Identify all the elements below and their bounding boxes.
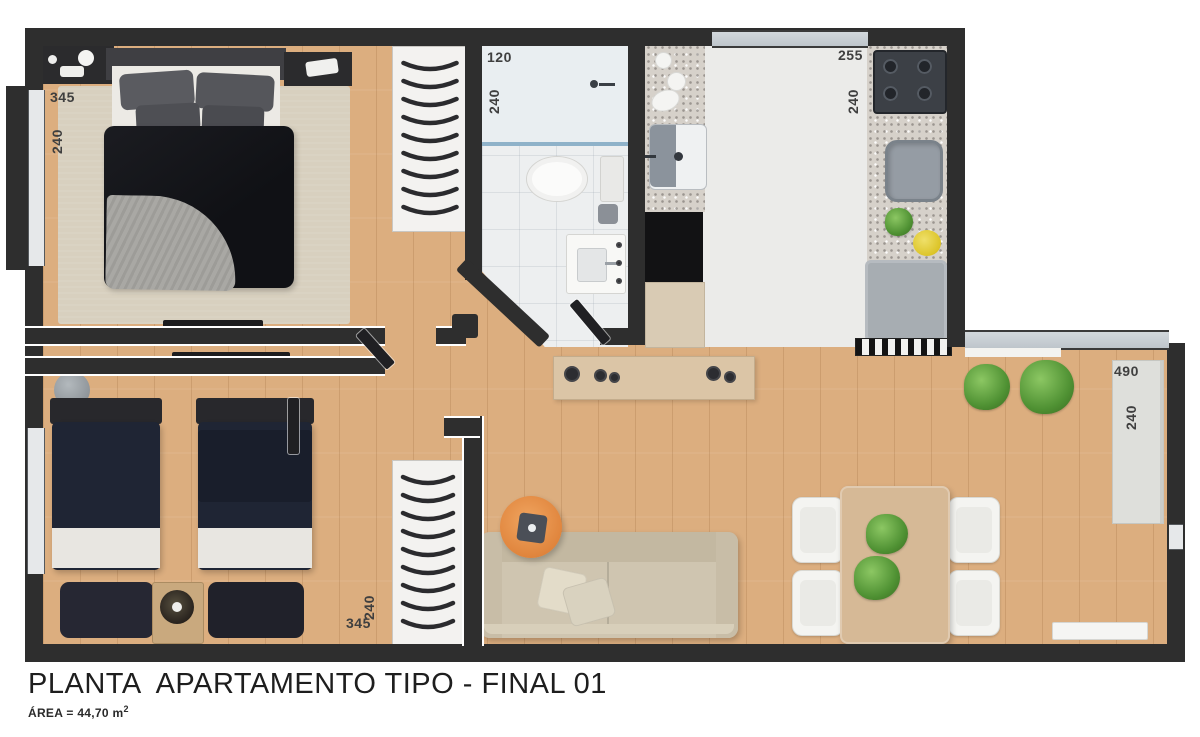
vanity-accessory xyxy=(616,260,622,266)
bedroom2-bed-left-sheet xyxy=(52,528,160,568)
burner-icon xyxy=(917,59,932,74)
toilet-flush-unit xyxy=(598,204,618,224)
chair-seat xyxy=(800,580,836,626)
wall-corner-block xyxy=(452,314,478,338)
kitchen-width-label: 255 xyxy=(838,48,863,62)
bathroom-depth-label: 240 xyxy=(487,70,501,114)
bathroom-width-label: 120 xyxy=(487,50,512,64)
burner-icon xyxy=(883,86,898,101)
plan-area-value: ÁREA = 44,70 m xyxy=(28,706,123,720)
sofa-front-edge xyxy=(484,624,734,634)
dining-chair xyxy=(792,497,844,563)
bedroom2-wardrobe xyxy=(392,460,464,646)
living-width-label: 490 xyxy=(1114,364,1139,378)
bedroom1-lamp-icon xyxy=(78,50,94,66)
burner-icon xyxy=(883,59,898,74)
kitchen xyxy=(645,44,947,347)
bedroom1-nightstand-left xyxy=(42,44,114,84)
dining-chair xyxy=(792,570,844,636)
wall-bathroom-east xyxy=(628,28,645,345)
hangers-icon xyxy=(393,461,463,645)
sofa-armrest-right xyxy=(716,532,738,638)
console-decor xyxy=(724,371,736,383)
counter-pass-edge xyxy=(965,348,1061,357)
chair-seat xyxy=(800,507,836,553)
shower-arm-icon xyxy=(599,83,615,86)
burner-icon xyxy=(917,86,932,101)
bedroom2-door-leaf xyxy=(288,398,299,454)
bedroom2-bed-left-headboard xyxy=(50,398,162,424)
console-decor xyxy=(594,369,607,382)
wall-right-lower xyxy=(1167,343,1185,662)
toilet-bowl xyxy=(526,156,588,202)
sink-faucet-arm-icon xyxy=(644,155,656,158)
bedroom2-window xyxy=(27,428,45,574)
kitchen-cabinet-dark xyxy=(645,212,703,282)
wall-hall-corner xyxy=(444,416,480,438)
refrigerator xyxy=(865,260,947,342)
shower-glass-divider xyxy=(482,142,628,146)
dining-chair xyxy=(948,570,1000,636)
kitchen-depth-label: 240 xyxy=(846,70,860,114)
bedroom2-width-label: 345 xyxy=(346,616,371,630)
bedroom1-depth-label: 240 xyxy=(50,110,64,154)
kitchen-window xyxy=(712,30,868,48)
wall-hall-vertical xyxy=(462,416,484,646)
bedroom1-wardrobe xyxy=(392,46,468,232)
fruit-bowl xyxy=(913,230,941,256)
side-table-cup xyxy=(528,524,536,532)
plan-area: ÁREA = 44,70 m2 xyxy=(28,704,129,720)
toilet-tank xyxy=(600,156,624,202)
console-decor xyxy=(706,366,721,381)
plan-area-exponent: 2 xyxy=(123,704,128,714)
chair-seat xyxy=(956,507,992,553)
bedroom1-window xyxy=(28,90,45,266)
chair-seat xyxy=(956,580,992,626)
vanity-accessory xyxy=(616,278,622,284)
bedroom2-lamp-highlight xyxy=(172,602,182,612)
window-sill-strip xyxy=(1052,622,1148,640)
bedroom1-decor-tray xyxy=(60,66,84,77)
living-depth-label: 240 xyxy=(1124,386,1138,430)
bedroom1-small-lamp-icon xyxy=(48,55,57,64)
kitchen-doormat xyxy=(855,338,952,356)
dish-rack-icon xyxy=(667,72,686,91)
vanity-accessory xyxy=(616,242,622,248)
stove-cooktop xyxy=(873,50,947,114)
wall-bedroom1-south xyxy=(25,326,385,346)
bedroom1-width-label: 345 xyxy=(50,90,75,104)
plan-title: PLANTA APARTAMENTO TIPO - FINAL 01 xyxy=(28,668,607,701)
shower-head-icon xyxy=(590,80,598,88)
hangers-icon xyxy=(393,47,467,231)
bedroom2-bed-right-sheet xyxy=(198,528,312,568)
floorplan-canvas: 345 240 120 240 xyxy=(0,0,1200,737)
dining-chair xyxy=(948,497,1000,563)
wall-bottom xyxy=(25,644,1185,662)
living-glass-wall xyxy=(965,330,1169,350)
bedroom2-bed-right-pillow xyxy=(208,582,304,638)
console-decor xyxy=(609,372,620,383)
wall-right-upper xyxy=(947,28,965,347)
kitchen-sink-right xyxy=(885,140,943,202)
vanity-sink-basin xyxy=(577,248,607,282)
kitchen-cabinet-wood xyxy=(645,282,705,348)
bedroom2-bed-left-pillow xyxy=(60,582,154,638)
console-decor xyxy=(564,366,580,382)
dish-rack-icon xyxy=(655,52,672,69)
wall-bathroom-west xyxy=(465,28,482,280)
living-window-east xyxy=(1169,524,1183,550)
terrace-bench xyxy=(1112,360,1164,524)
sink-faucet-icon xyxy=(674,152,683,161)
bedroom2-depth-label: 240 xyxy=(362,576,376,620)
window-frame-outer xyxy=(6,86,30,270)
kitchen-sink-left xyxy=(649,124,707,190)
wall-bedroom2-north xyxy=(25,356,385,376)
